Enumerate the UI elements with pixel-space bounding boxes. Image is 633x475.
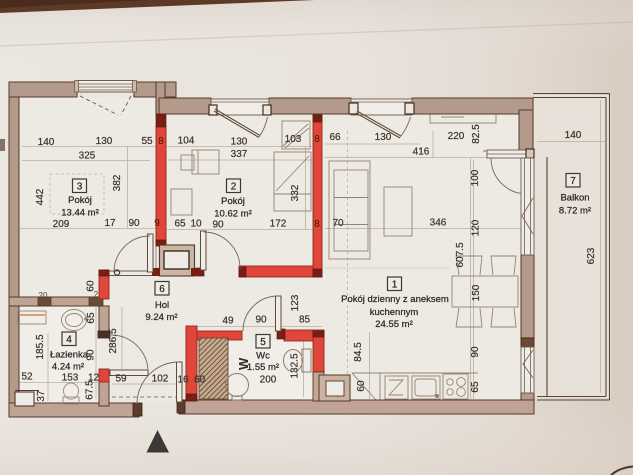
svg-text:140: 140	[565, 130, 582, 141]
svg-text:84.5: 84.5	[353, 342, 364, 362]
svg-text:52: 52	[21, 372, 33, 383]
svg-text:346: 346	[430, 218, 447, 229]
svg-text:209: 209	[53, 219, 70, 230]
svg-text:607.5: 607.5	[455, 242, 466, 267]
svg-text:172: 172	[270, 219, 287, 230]
svg-text:kuchennym: kuchennym	[370, 307, 419, 318]
svg-text:4: 4	[66, 335, 72, 346]
svg-text:153: 153	[62, 373, 79, 384]
svg-text:90: 90	[470, 346, 481, 358]
svg-text:7: 7	[570, 176, 576, 187]
svg-text:59: 59	[115, 374, 127, 385]
svg-text:65: 65	[470, 381, 481, 393]
svg-text:70: 70	[332, 218, 344, 229]
svg-text:9.24 m²: 9.24 m²	[145, 312, 177, 323]
svg-text:65: 65	[174, 219, 186, 230]
svg-text:200: 200	[260, 375, 277, 386]
svg-text:130: 130	[96, 136, 113, 147]
svg-text:8: 8	[314, 219, 320, 230]
svg-text:130: 130	[375, 132, 392, 143]
svg-text:17: 17	[104, 218, 116, 229]
svg-text:Pokój: Pokój	[221, 196, 245, 207]
svg-text:90: 90	[255, 315, 267, 326]
svg-text:337: 337	[231, 149, 248, 160]
svg-text:6: 6	[159, 284, 165, 295]
svg-text:3: 3	[77, 182, 83, 193]
svg-text:382: 382	[112, 174, 123, 191]
svg-text:65: 65	[86, 312, 97, 324]
svg-text:Balkon: Balkon	[560, 193, 589, 204]
svg-text:24.55 m²: 24.55 m²	[375, 319, 413, 330]
svg-text:60: 60	[356, 380, 367, 392]
svg-text:Łazienka: Łazienka	[50, 350, 89, 361]
svg-text:100: 100	[470, 169, 481, 186]
svg-text:140: 140	[38, 137, 55, 148]
svg-text:132.5: 132.5	[290, 353, 301, 378]
svg-text:1: 1	[392, 280, 398, 291]
svg-text:12: 12	[88, 373, 100, 384]
svg-text:Hol: Hol	[155, 300, 169, 311]
svg-text:416: 416	[413, 147, 430, 158]
svg-text:8.72 m²: 8.72 m²	[559, 206, 591, 217]
svg-text:5: 5	[260, 337, 266, 348]
svg-text:130: 130	[231, 137, 248, 148]
svg-text:Pokój: Pokój	[68, 195, 92, 206]
svg-text:Pokój dzienny z aneksem: Pokój dzienny z aneksem	[341, 294, 449, 305]
svg-text:286.5: 286.5	[108, 328, 119, 353]
svg-text:120: 120	[471, 219, 482, 236]
svg-text:104: 104	[178, 136, 195, 147]
svg-text:332: 332	[290, 184, 301, 201]
svg-text:85: 85	[299, 315, 311, 326]
svg-text:9: 9	[154, 218, 160, 229]
svg-text:1.55 m²: 1.55 m²	[247, 362, 279, 373]
svg-text:60: 60	[194, 375, 206, 386]
svg-text:20: 20	[39, 291, 48, 300]
svg-text:90: 90	[212, 220, 224, 231]
svg-text:8: 8	[158, 136, 164, 147]
svg-text:102: 102	[152, 374, 169, 385]
svg-text:66: 66	[329, 132, 341, 143]
svg-text:103: 103	[285, 134, 302, 145]
svg-text:16: 16	[177, 375, 189, 386]
svg-text:325: 325	[79, 151, 96, 162]
svg-text:220: 220	[448, 131, 465, 142]
svg-text:2: 2	[231, 182, 237, 193]
svg-text:10: 10	[190, 219, 202, 230]
svg-text:13.44 m²: 13.44 m²	[61, 208, 99, 219]
svg-text:150: 150	[471, 284, 482, 301]
svg-text:37: 37	[36, 390, 47, 402]
svg-text:4.24 m²: 4.24 m²	[52, 362, 84, 373]
svg-text:49: 49	[222, 316, 234, 327]
svg-text:55: 55	[141, 136, 153, 147]
svg-text:123: 123	[290, 294, 301, 311]
svg-text:442: 442	[35, 188, 46, 205]
svg-text:10.62 m²: 10.62 m²	[214, 209, 252, 220]
svg-text:8: 8	[314, 134, 320, 145]
svg-text:82.5: 82.5	[471, 124, 482, 144]
svg-text:185.5: 185.5	[35, 334, 46, 359]
svg-text:623: 623	[586, 247, 597, 264]
svg-text:90: 90	[128, 218, 140, 229]
svg-text:Wc: Wc	[256, 351, 270, 362]
svg-text:2: 2	[94, 290, 99, 299]
